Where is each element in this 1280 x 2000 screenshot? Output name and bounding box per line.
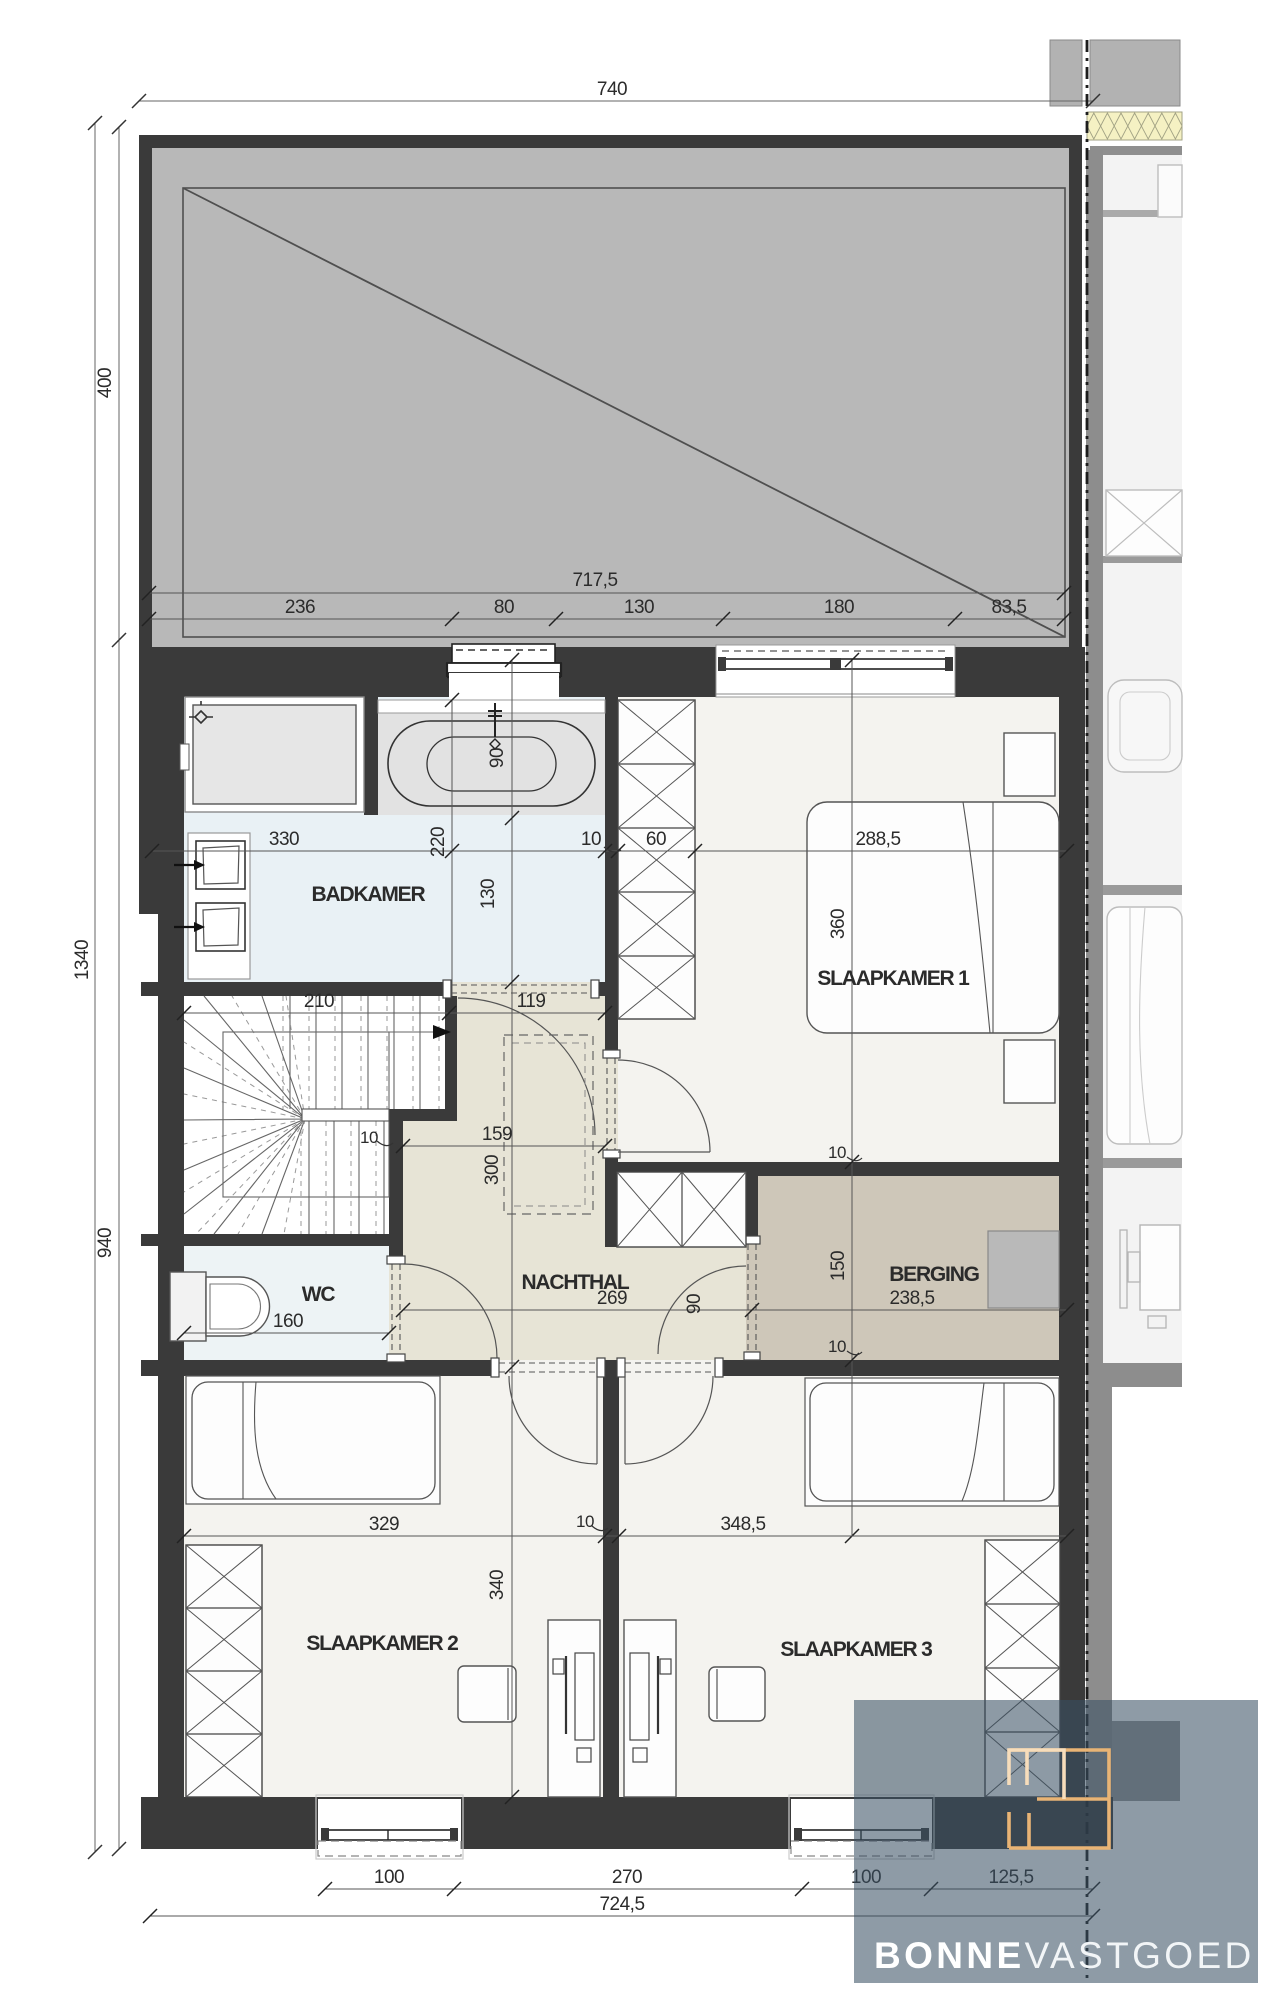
svg-text:220: 220 <box>428 827 449 857</box>
svg-text:400: 400 <box>95 368 116 398</box>
svg-text:159: 159 <box>482 1124 512 1145</box>
svg-text:130: 130 <box>624 597 654 618</box>
svg-text:SLAAPKAMER 1: SLAAPKAMER 1 <box>817 967 970 990</box>
svg-text:300: 300 <box>482 1155 503 1185</box>
svg-text:BERGING: BERGING <box>889 1263 979 1286</box>
svg-text:60: 60 <box>646 829 666 850</box>
svg-text:210: 210 <box>304 991 334 1012</box>
svg-text:10: 10 <box>828 1143 846 1162</box>
svg-text:180: 180 <box>824 597 854 618</box>
svg-text:10: 10 <box>581 829 601 850</box>
svg-text:100: 100 <box>374 1867 404 1888</box>
svg-text:10: 10 <box>828 1337 846 1356</box>
svg-text:130: 130 <box>478 879 499 909</box>
svg-text:717,5: 717,5 <box>572 570 617 591</box>
svg-text:724,5: 724,5 <box>599 1894 644 1915</box>
svg-text:329: 329 <box>369 1514 399 1535</box>
svg-text:348,5: 348,5 <box>720 1514 765 1535</box>
svg-text:90: 90 <box>487 748 508 768</box>
svg-text:270: 270 <box>612 1867 642 1888</box>
svg-text:90: 90 <box>684 1294 705 1314</box>
svg-text:150: 150 <box>828 1251 849 1281</box>
svg-text:1340: 1340 <box>72 940 93 980</box>
svg-text:236: 236 <box>285 597 315 618</box>
svg-text:BADKAMER: BADKAMER <box>312 883 426 906</box>
svg-text:83,5: 83,5 <box>992 597 1027 618</box>
svg-text:BONNEVASTGOED: BONNEVASTGOED <box>874 1935 1255 1976</box>
svg-text:740: 740 <box>597 79 627 100</box>
svg-text:10: 10 <box>360 1128 378 1147</box>
svg-text:10: 10 <box>576 1512 594 1531</box>
svg-text:330: 330 <box>269 829 299 850</box>
svg-text:238,5: 238,5 <box>889 1288 934 1309</box>
svg-text:80: 80 <box>494 597 514 618</box>
svg-text:SLAAPKAMER 2: SLAAPKAMER 2 <box>306 1632 458 1655</box>
svg-text:119: 119 <box>517 991 546 1012</box>
svg-text:360: 360 <box>828 909 849 939</box>
svg-text:SLAAPKAMER 3: SLAAPKAMER 3 <box>780 1638 932 1661</box>
svg-text:160: 160 <box>273 1311 303 1332</box>
svg-text:940: 940 <box>95 1228 116 1258</box>
svg-text:340: 340 <box>487 1570 508 1600</box>
svg-text:WC: WC <box>302 1283 336 1306</box>
svg-text:NACHTHAL: NACHTHAL <box>521 1271 629 1294</box>
svg-text:288,5: 288,5 <box>855 829 900 850</box>
